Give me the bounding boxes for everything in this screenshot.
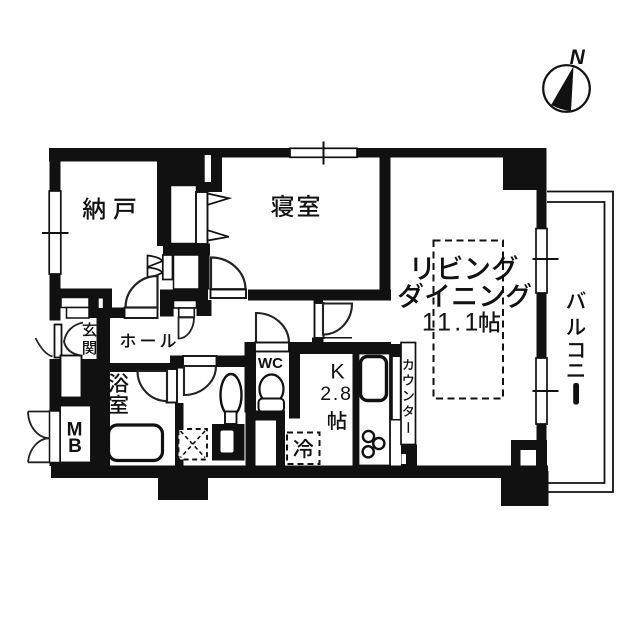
svg-text:K: K (330, 360, 345, 384)
svg-text:11.1: 11.1 (422, 309, 482, 337)
svg-text:N: N (570, 46, 586, 69)
svg-text:2.8: 2.8 (320, 383, 353, 405)
svg-text:WC: WC (258, 355, 283, 372)
svg-text:B: B (68, 436, 82, 457)
